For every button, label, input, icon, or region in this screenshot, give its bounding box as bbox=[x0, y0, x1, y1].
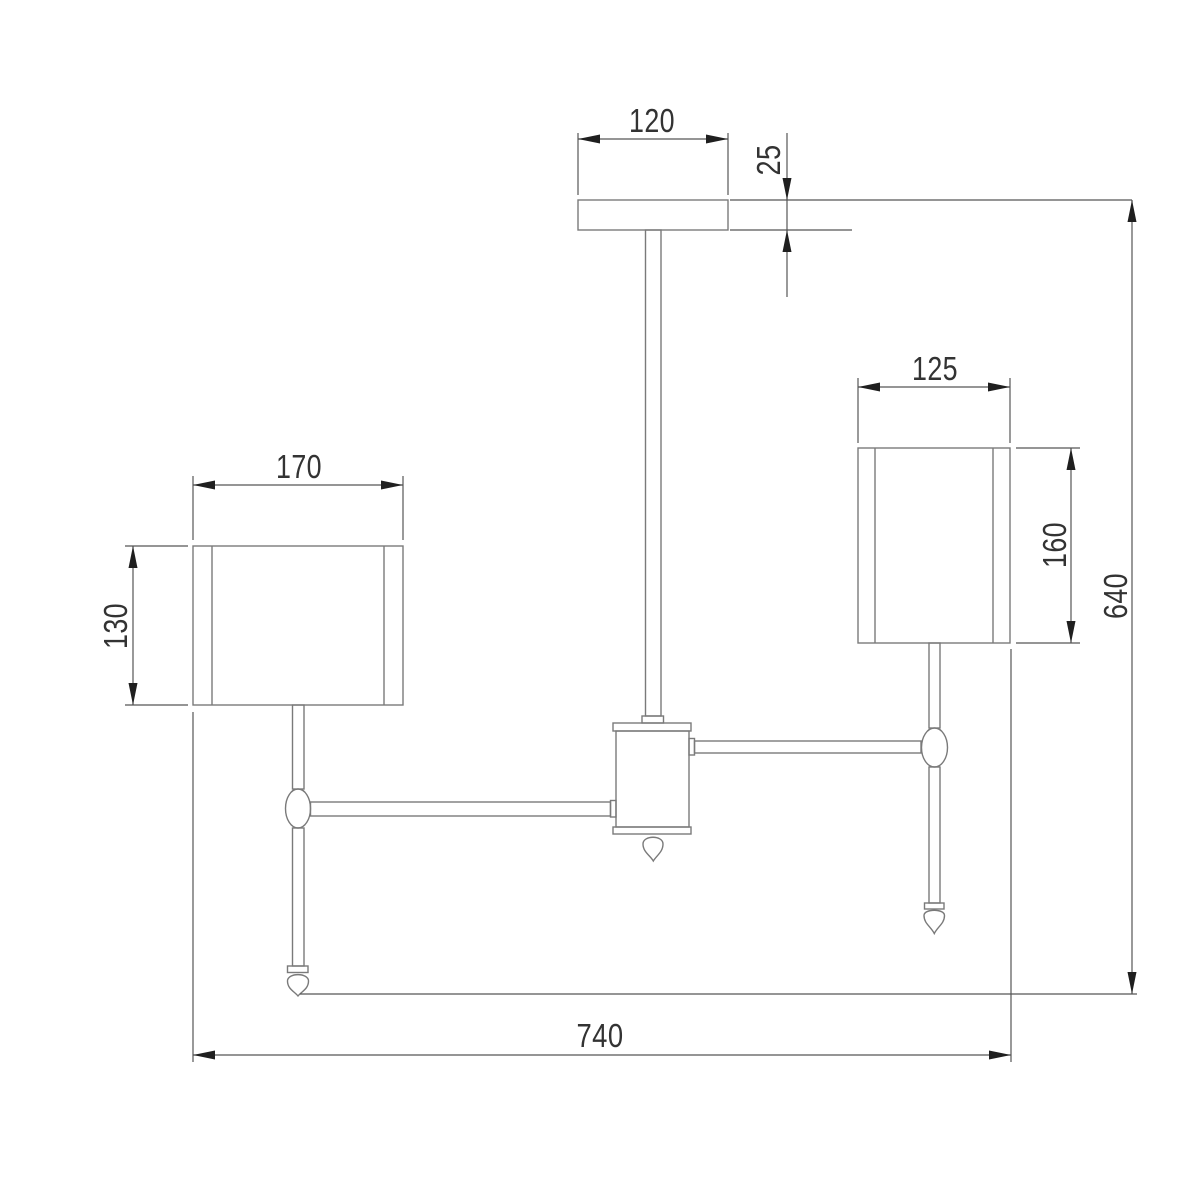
dim-label-left-shade-height: 130 bbox=[97, 603, 134, 649]
dim-label-left-shade-width: 170 bbox=[276, 448, 322, 485]
dim-label-right-shade-width: 125 bbox=[912, 350, 958, 387]
arrow-up bbox=[783, 230, 792, 252]
body-bottom-cap bbox=[613, 827, 691, 834]
left-rod-oval bbox=[286, 789, 311, 828]
dimension-canopy-width: 120 bbox=[578, 102, 728, 195]
left-finial bbox=[288, 975, 309, 996]
arrow-down bbox=[1128, 972, 1137, 994]
right-arm-connector bbox=[689, 739, 695, 756]
technical-drawing-canvas: 120 25 170 130 bbox=[0, 0, 1200, 1200]
arrow-up bbox=[1128, 200, 1137, 222]
right-rod-oval bbox=[922, 728, 948, 767]
dim-label-canopy-width: 120 bbox=[629, 102, 675, 139]
arrow-left bbox=[193, 1051, 215, 1060]
arrow-down bbox=[783, 178, 792, 200]
central-stem bbox=[646, 230, 662, 716]
chandelier-dimension-drawing: 120 25 170 130 bbox=[0, 0, 1200, 1200]
dimension-right-shade-height: 160 bbox=[1016, 448, 1080, 643]
dim-label-overall-width: 740 bbox=[577, 1017, 624, 1054]
right-lampshade bbox=[858, 448, 1010, 643]
fixture-outline bbox=[193, 200, 1010, 996]
dimension-canopy-height: 25 bbox=[730, 133, 1132, 297]
body-cylinder bbox=[616, 731, 689, 827]
left-rod-lower bbox=[293, 828, 305, 966]
left-lampshade bbox=[193, 546, 403, 705]
dimension-left-shade-width: 170 bbox=[193, 448, 403, 540]
left-arm-connector bbox=[611, 801, 617, 818]
body-finial bbox=[643, 837, 663, 861]
dim-label-right-shade-height: 160 bbox=[1036, 522, 1073, 568]
arrow-right bbox=[381, 481, 403, 490]
arrow-up bbox=[129, 546, 138, 568]
right-arm bbox=[695, 741, 922, 753]
right-rod-upper bbox=[929, 643, 940, 728]
dimension-overall-width: 740 bbox=[193, 649, 1011, 1062]
arrow-right bbox=[989, 1051, 1011, 1060]
dim-label-overall-height: 640 bbox=[1097, 573, 1134, 619]
dimension-left-shade-height: 130 bbox=[97, 546, 188, 705]
body-top-cap bbox=[613, 723, 691, 731]
left-finial-collar bbox=[288, 966, 309, 973]
right-finial bbox=[924, 910, 945, 933]
arrow-left bbox=[858, 383, 880, 392]
arrow-down bbox=[1067, 621, 1076, 643]
dimension-right-shade-width: 125 bbox=[858, 350, 1010, 443]
dim-label-canopy-height: 25 bbox=[750, 145, 787, 176]
arrow-left bbox=[578, 135, 600, 144]
right-rod-lower bbox=[929, 767, 940, 903]
ceiling-canopy bbox=[578, 200, 728, 230]
left-rod-upper bbox=[293, 705, 305, 789]
arrow-right bbox=[706, 135, 728, 144]
arrow-down bbox=[129, 683, 138, 705]
arrow-left bbox=[193, 481, 215, 490]
arrow-up bbox=[1067, 448, 1076, 470]
left-arm bbox=[311, 802, 611, 816]
right-finial-collar bbox=[925, 903, 945, 909]
arrow-right bbox=[988, 383, 1010, 392]
stem-bottom-collar bbox=[642, 716, 664, 723]
